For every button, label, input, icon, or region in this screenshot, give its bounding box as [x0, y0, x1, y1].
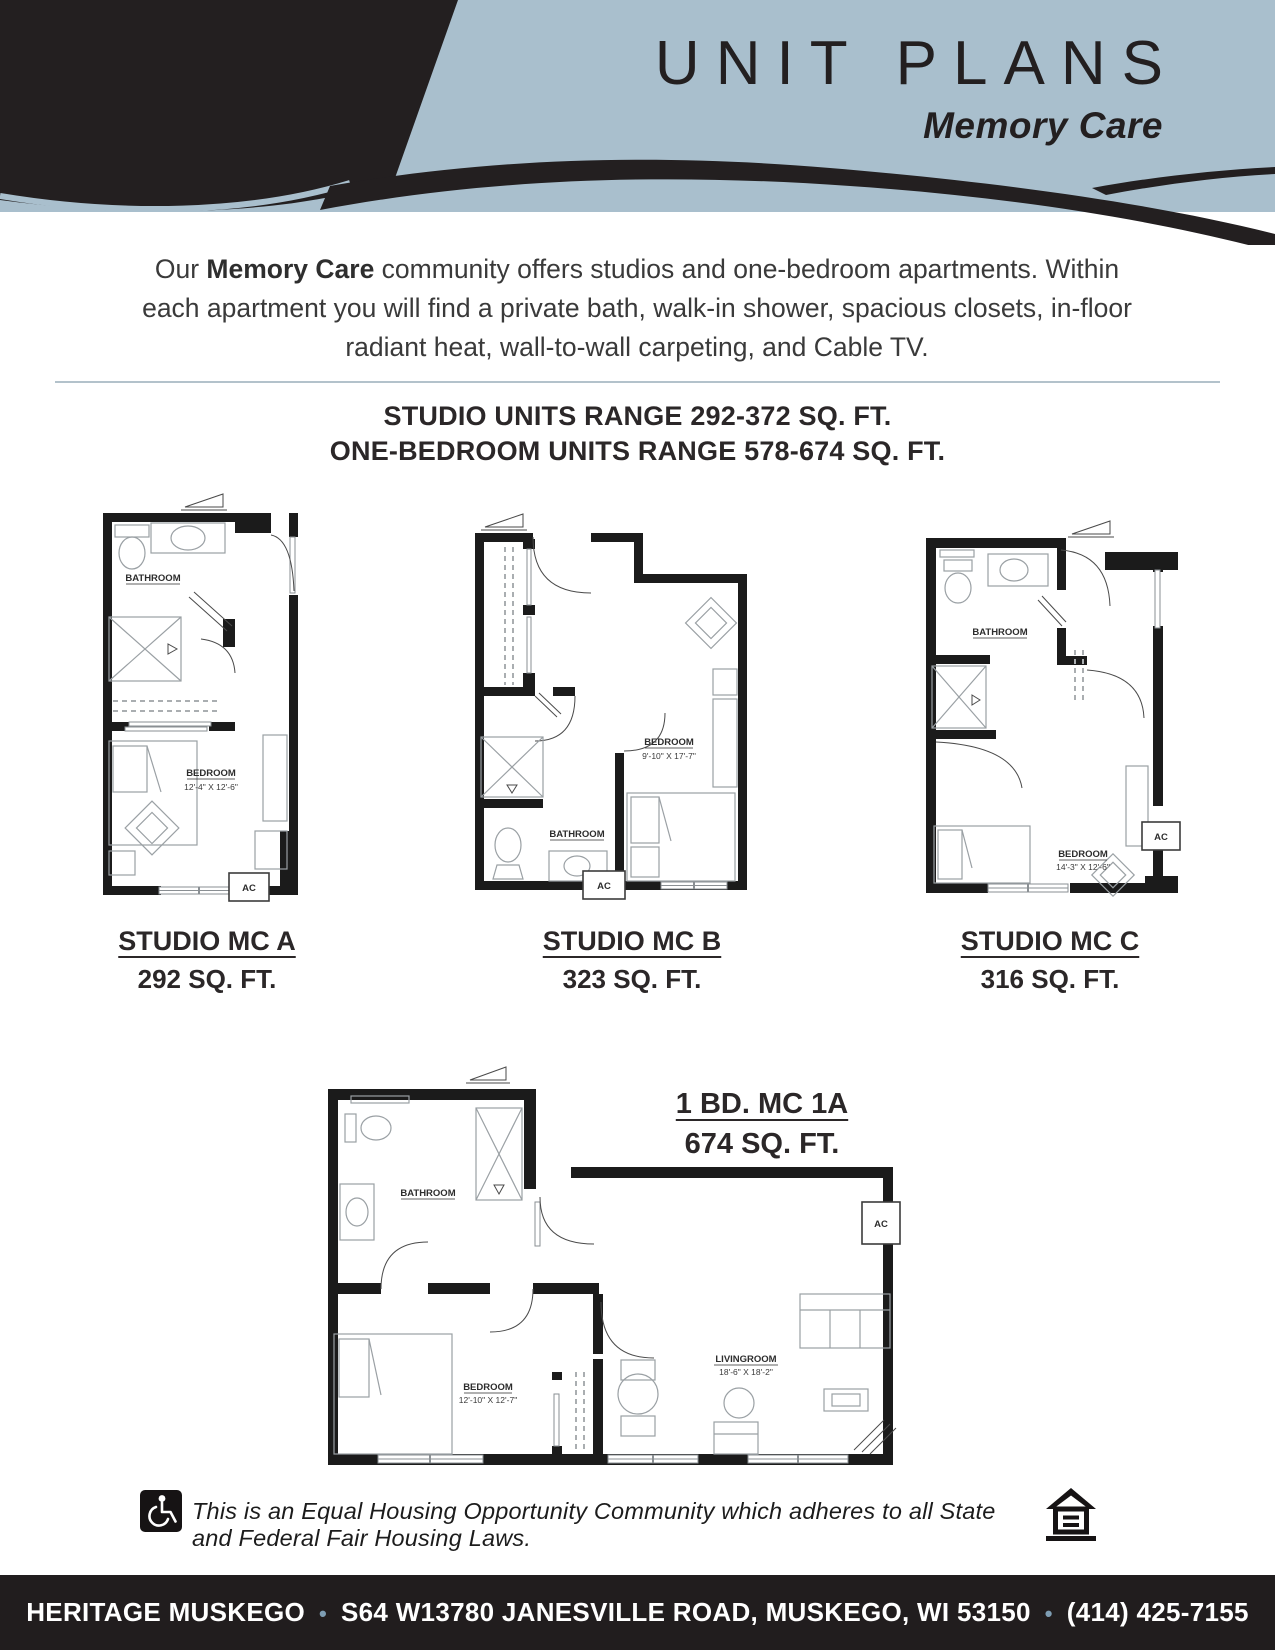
footer-bullet: • [1031, 1601, 1067, 1626]
bathroom-label: BATHROOM [125, 573, 180, 584]
bedroom-dims: 14'-3" X 12'-6" [1056, 862, 1110, 872]
bedroom-dims: 12'-4" X 12'-6" [184, 782, 238, 792]
community-phone: (414) 425-7155 [1067, 1597, 1249, 1627]
floor-plan-studio-mc-a: AC BATHROOM BEDROOM 12'-4" X 12'-6" [93, 477, 308, 912]
studio-range: STUDIO UNITS RANGE 292-372 SQ. FT. [0, 399, 1275, 434]
plan-sqft: 316 SQ. FT. [940, 964, 1160, 995]
unit-plans-flyer: UNIT PLANS Memory Care Our Memory Care c… [0, 0, 1275, 1650]
livingroom-dims: 18'-6" X 18'-2" [719, 1367, 773, 1377]
plan-title: STUDIO MC B [522, 926, 742, 957]
ac-label: AC [874, 1219, 888, 1230]
legal-text: This is an Equal Housing Opportunity Com… [192, 1498, 1032, 1552]
community-name: HERITAGE MUSKEGO [26, 1597, 305, 1627]
walls [926, 538, 1178, 893]
livingroom-label: LIVINGROOM [715, 1354, 776, 1365]
caption-studio-mc-a: STUDIO MC A 292 SQ. FT. [97, 926, 317, 995]
ac-label: AC [597, 881, 611, 892]
caption-studio-mc-c: STUDIO MC C 316 SQ. FT. [940, 926, 1160, 995]
bathroom-label: BATHROOM [400, 1188, 455, 1199]
bathroom-fixtures [109, 523, 225, 681]
equal-housing-icon [1046, 1488, 1096, 1541]
footer-text: HERITAGE MUSKEGO•S64 W13780 JANESVILLE R… [26, 1597, 1249, 1628]
floor-plan-studio-mc-b: AC BATHROOM BEDROOM 9'-10" X 17'-7" [465, 505, 755, 900]
legal-row: This is an Equal Housing Opportunity Com… [0, 1488, 1275, 1540]
plan-sqft: 323 SQ. FT. [522, 964, 742, 995]
unit-ranges: STUDIO UNITS RANGE 292-372 SQ. FT. ONE-B… [0, 399, 1275, 469]
bedroom-label: BEDROOM [644, 737, 694, 748]
bathroom-fixtures [340, 1096, 522, 1240]
caption-studio-mc-b: STUDIO MC B 323 SQ. FT. [522, 926, 742, 995]
bathroom-label: BATHROOM [549, 829, 604, 840]
page-subtitle: Memory Care [655, 105, 1163, 147]
bathroom-fixtures [932, 550, 1048, 728]
plan-title: STUDIO MC C [940, 926, 1160, 957]
walls [103, 513, 298, 895]
floor-plan-1bd-mc-1a: AC BATHROOM BEDROOM 12'-10" X 12'-7" LIV… [318, 1062, 903, 1470]
page-title: UNIT PLANS [655, 28, 1179, 99]
intro-lead: Our [155, 254, 207, 284]
bedroom-label: BEDROOM [463, 1382, 513, 1393]
bedroom-dims: 9'-10" X 17'-7" [642, 751, 696, 761]
bedroom-furniture [334, 1334, 452, 1454]
plan-sqft: 292 SQ. FT. [97, 964, 317, 995]
footer-bar: HERITAGE MUSKEGO•S64 W13780 JANESVILLE R… [0, 1575, 1275, 1650]
accessibility-icon [140, 1490, 182, 1532]
bathroom-fixtures [481, 737, 607, 881]
bedroom-label: BEDROOM [1058, 849, 1108, 860]
ac-label: AC [1154, 832, 1168, 843]
floor-plan-studio-mc-c: AC BATHROOM BEDROOM 14'-3" X 12'-6" [920, 508, 1182, 908]
header-text: UNIT PLANS Memory Care [655, 28, 1163, 147]
walls [475, 533, 747, 890]
intro-bold: Memory Care [206, 254, 374, 284]
bedroom-furniture [109, 735, 287, 875]
footer-bullet: • [305, 1601, 341, 1626]
intro-paragraph: Our Memory Care community offers studios… [137, 250, 1137, 367]
bathroom-label: BATHROOM [972, 627, 1027, 638]
walls [328, 1089, 893, 1465]
ac-label: AC [242, 883, 256, 894]
bedroom-dims: 12'-10" X 12'-7" [459, 1395, 517, 1405]
community-address: S64 W13780 JANESVILLE ROAD, MUSKEGO, WI … [341, 1597, 1031, 1627]
plan-title: STUDIO MC A [97, 926, 317, 957]
one-bedroom-range: ONE-BEDROOM UNITS RANGE 578-674 SQ. FT. [0, 434, 1275, 469]
bedroom-furniture [934, 766, 1148, 896]
section-divider [55, 381, 1220, 383]
bedroom-label: BEDROOM [186, 768, 236, 779]
